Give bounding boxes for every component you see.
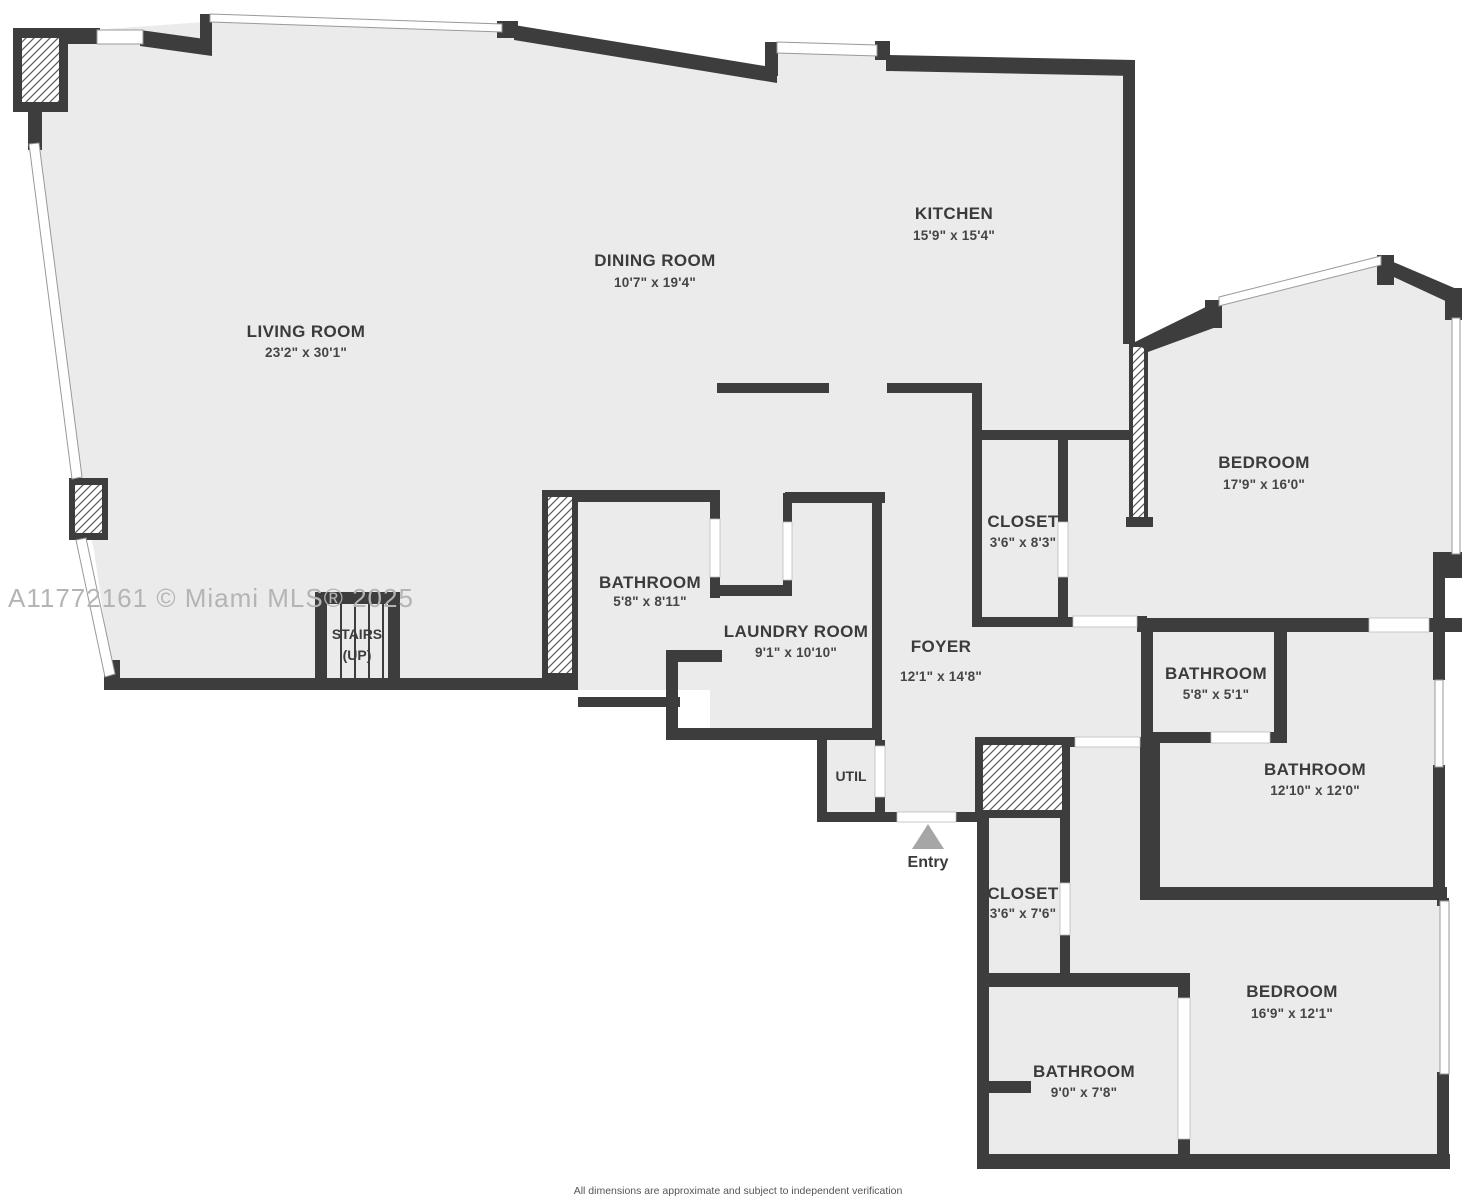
floorplan-page: LIVING ROOM 23'2" x 30'1" DINING ROOM 10… (0, 0, 1476, 1200)
dims-kitchen: 15'9" x 15'4" (913, 228, 995, 243)
dims-closet-2: 3'6" x 7'6" (990, 906, 1056, 921)
label-bathroom-2: BATHROOM (1165, 664, 1267, 683)
label-bathroom-3: BATHROOM (1264, 760, 1366, 779)
label-bedroom-1: BEDROOM (1218, 453, 1310, 472)
label-entry: Entry (908, 854, 949, 871)
dims-bathroom-1: 5'8" x 8'11" (613, 594, 686, 609)
floorplan-drawing: LIVING ROOM 23'2" x 30'1" DINING ROOM 10… (0, 0, 1476, 1200)
disclaimer-text: All dimensions are approximate and subje… (574, 1185, 903, 1197)
dims-laundry-room: 9'1" x 10'10" (755, 645, 837, 660)
dims-closet-1: 3'6" x 8'3" (990, 535, 1056, 550)
dims-bedroom-1: 17'9" x 16'0" (1223, 477, 1305, 492)
dims-bedroom-2: 16'9" x 12'1" (1251, 1006, 1333, 1021)
dims-dining-room: 10'7" x 19'4" (614, 275, 696, 290)
mls-watermark: A11772161 © Miami MLS® 2025 (8, 583, 414, 613)
label-kitchen: KITCHEN (915, 204, 993, 223)
label-dining-room: DINING ROOM (594, 251, 716, 270)
label-bathroom-1: BATHROOM (599, 573, 701, 592)
dims-bathroom-4: 9'0" x 7'8" (1051, 1085, 1117, 1100)
label-laundry-room: LAUNDRY ROOM (724, 622, 869, 641)
dims-bathroom-2: 5'8" x 5'1" (1183, 687, 1249, 702)
dims-bathroom-3: 12'10" x 12'0" (1270, 783, 1360, 798)
label-closet-2: CLOSET (987, 884, 1059, 903)
label-stairs-up: (UP) (343, 647, 372, 663)
label-util: UTIL (835, 768, 867, 784)
entry-arrow-icon (912, 824, 944, 849)
label-foyer: FOYER (911, 637, 972, 656)
label-living-room: LIVING ROOM (247, 322, 366, 341)
label-bathroom-4: BATHROOM (1033, 1062, 1135, 1081)
label-stairs: STAIRS (332, 626, 382, 642)
dims-foyer: 12'1" x 14'8" (900, 669, 982, 684)
label-bedroom-2: BEDROOM (1246, 982, 1338, 1001)
label-closet-1: CLOSET (987, 512, 1059, 531)
dims-living-room: 23'2" x 30'1" (265, 345, 347, 360)
